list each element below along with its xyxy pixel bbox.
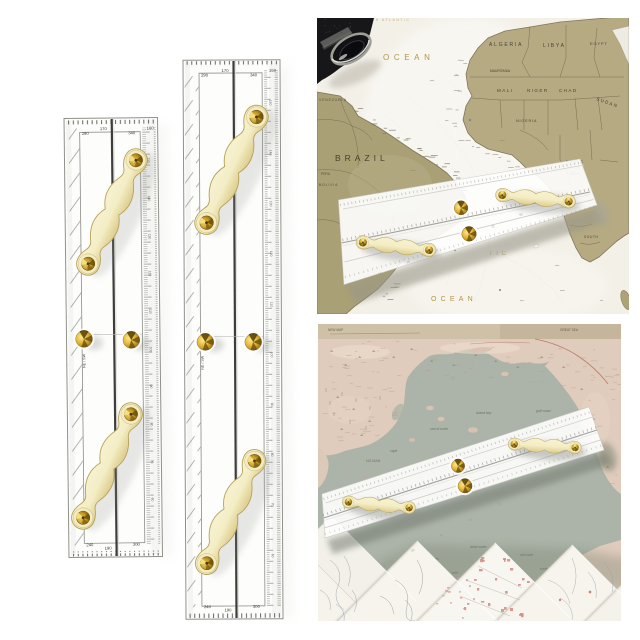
svg-text:160: 160	[147, 126, 155, 131]
svg-text:OCEAN: OCEAN	[431, 296, 477, 303]
svg-text:NE / SW: NE / SW	[82, 353, 86, 367]
svg-text:130: 130	[269, 201, 273, 207]
svg-text:340: 340	[128, 130, 136, 135]
svg-text:gulf coast: gulf coast	[536, 409, 552, 413]
svg-text:170: 170	[222, 68, 230, 73]
svg-text:300: 300	[133, 542, 141, 547]
svg-text:MAURITANIA: MAURITANIA	[490, 69, 511, 73]
svg-text:290: 290	[82, 131, 90, 136]
svg-text:NEW MAP: NEW MAP	[328, 328, 343, 332]
svg-text:SOUTH: SOUTH	[584, 235, 599, 239]
svg-text:60: 60	[271, 554, 275, 558]
svg-text:130: 130	[147, 234, 151, 240]
svg-text:190: 190	[105, 546, 113, 551]
svg-text:70: 70	[270, 503, 274, 507]
svg-text:120: 120	[269, 251, 273, 257]
svg-text:cape: cape	[390, 449, 397, 453]
svg-text:island bay: island bay	[476, 411, 492, 415]
svg-text:CHAD: CHAD	[559, 88, 578, 93]
svg-text:VENEZUELA: VENEZUELA	[319, 98, 347, 102]
svg-text:90: 90	[149, 385, 153, 389]
svg-text:BRAZIL: BRAZIL	[335, 153, 389, 163]
svg-text:NIGERIA: NIGERIA	[516, 119, 537, 123]
svg-text:NO MAN: NO MAN	[366, 459, 381, 463]
svg-text:EGYPT: EGYPT	[590, 41, 608, 46]
svg-text:NIGER: NIGER	[527, 88, 549, 93]
svg-text:240: 240	[86, 542, 94, 547]
svg-text:70: 70	[150, 460, 154, 464]
svg-text:110: 110	[269, 302, 273, 308]
svg-text:60: 60	[150, 498, 154, 502]
svg-text:190: 190	[224, 608, 232, 613]
svg-text:170: 170	[100, 126, 108, 131]
svg-text:LIBYA: LIBYA	[543, 43, 566, 49]
svg-text:BOLIVIA: BOLIVIA	[319, 183, 338, 187]
svg-text:290: 290	[201, 73, 209, 78]
svg-text:240: 240	[204, 604, 212, 609]
svg-text:150: 150	[268, 100, 272, 106]
svg-text:160: 160	[269, 68, 277, 73]
svg-text:100: 100	[270, 352, 274, 358]
svg-text:MALI: MALI	[497, 88, 513, 93]
svg-text:100: 100	[149, 347, 153, 353]
svg-text:ALGERIA: ALGERIA	[489, 42, 523, 48]
svg-text:sea of north: sea of north	[430, 427, 448, 431]
svg-text:110: 110	[148, 309, 152, 315]
svg-text:340: 340	[250, 72, 258, 77]
svg-text:PERU: PERU	[321, 172, 331, 176]
svg-text:300: 300	[253, 604, 261, 609]
svg-text:NE / SW: NE / SW	[201, 355, 205, 369]
svg-text:120: 120	[148, 271, 152, 277]
svg-text:GREAT SEA: GREAT SEA	[560, 328, 579, 332]
svg-text:90: 90	[270, 403, 274, 407]
svg-text:OCEAN: OCEAN	[383, 53, 434, 62]
